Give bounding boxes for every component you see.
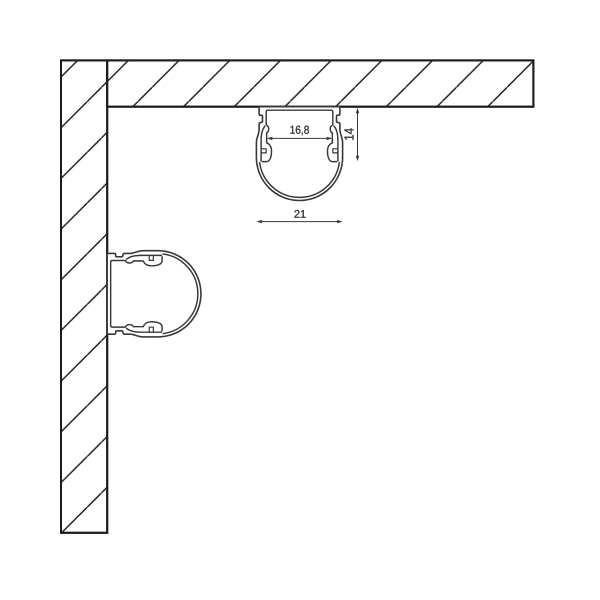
svg-text:14: 14 (343, 128, 357, 141)
svg-text:21: 21 (294, 209, 306, 221)
svg-text:16,8: 16,8 (290, 125, 310, 137)
